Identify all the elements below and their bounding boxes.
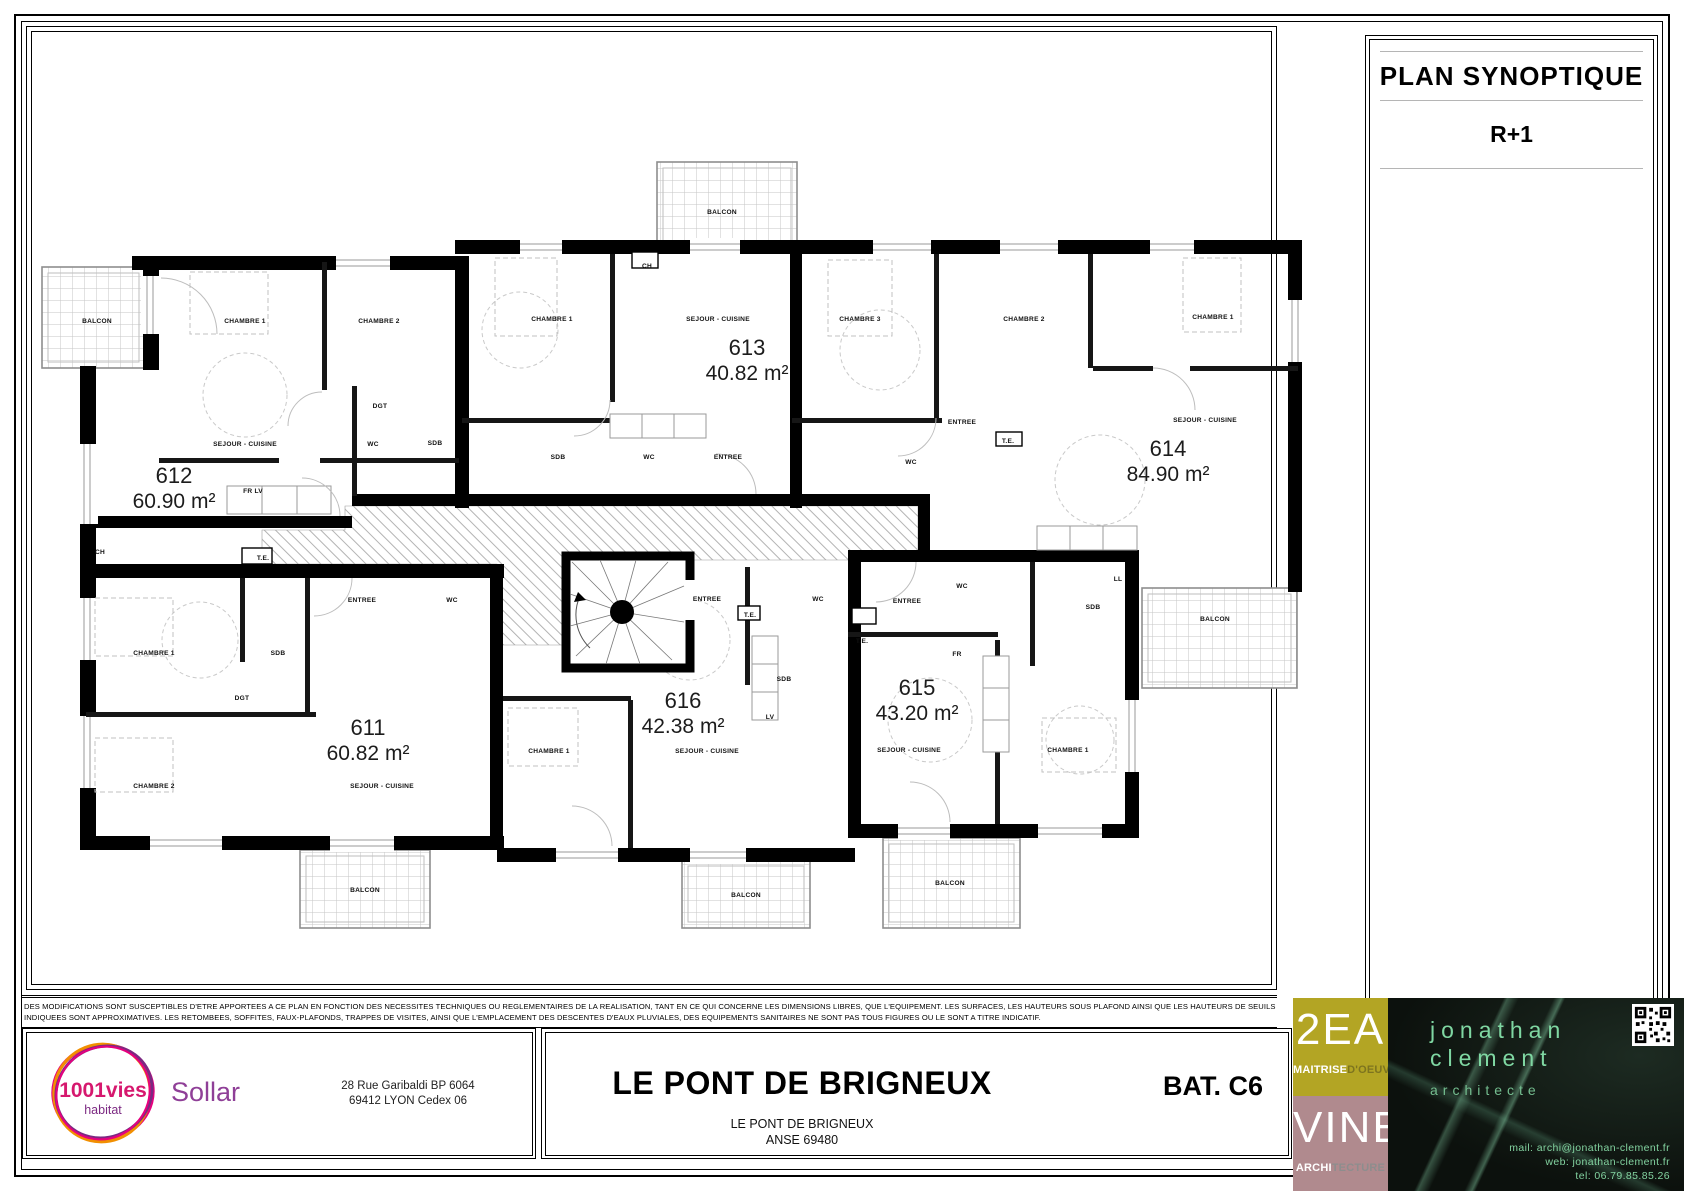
room-label: CHAMBRE 1 — [224, 318, 266, 325]
room-label: ENTREE — [714, 454, 743, 461]
architect-web: web: jonathan-clement.fr — [1509, 1155, 1670, 1169]
room-label: BALCON — [731, 892, 761, 899]
apartment-area-label: 60.82 m² — [327, 742, 410, 765]
room-label: BALCON — [82, 318, 112, 325]
qr-code-icon — [1632, 1004, 1674, 1046]
room-label: T.E. — [744, 612, 756, 619]
moe-vine-sublabel: ARCHITECTURE — [1293, 1162, 1388, 1174]
room-label: LV — [766, 714, 775, 721]
apartment-number-label: 613 — [729, 335, 766, 360]
apartment-area-label: 42.38 m² — [642, 715, 725, 738]
room-label: SDB — [777, 676, 792, 683]
project-block: LE PONT DE BRIGNEUX LE PONT DE BRIGNEUX … — [541, 1028, 1292, 1159]
room-label: SDB — [271, 650, 286, 657]
room-label: WC — [367, 441, 379, 448]
moe-2ea-block: 2EA MAITRISED'OEUVRE — [1293, 998, 1388, 1096]
client-address-line-1: 28 Rue Garibaldi BP 6064 — [285, 1079, 531, 1094]
room-label: T.E. — [1002, 438, 1014, 445]
room-label: DGT — [373, 403, 388, 410]
apartment-area-label: 43.20 m² — [876, 702, 959, 725]
room-label: CHAMBRE 3 — [839, 316, 881, 323]
panel-divider — [1380, 51, 1643, 52]
client-address-line-2: 69412 LYON Cedex 06 — [285, 1094, 531, 1109]
client-logo-text: 1001vies — [59, 1079, 147, 1102]
moe-vine-block: VINE ARCHITECTURE — [1293, 1096, 1388, 1191]
room-label: WC — [812, 596, 824, 603]
room-label: ENTREE — [348, 597, 377, 604]
apartment-area-label: 84.90 m² — [1127, 463, 1210, 486]
panel-divider — [1380, 100, 1643, 101]
room-label: LL — [1114, 576, 1123, 583]
client-logo: 1001vies habitat — [47, 1037, 159, 1149]
room-label: CHAMBRE 1 — [133, 650, 175, 657]
project-subtitle-line-2: ANSE 69480 — [582, 1133, 1022, 1149]
apartment-area-label: 40.82 m² — [706, 362, 789, 385]
apartment-number-label: 612 — [156, 463, 193, 488]
room-label: SEJOUR - CUISINE — [675, 748, 739, 755]
project-title: LE PONT DE BRIGNEUX — [582, 1065, 1022, 1102]
client-brand: Sollar — [171, 1077, 240, 1108]
moe-vine-label: VINE — [1293, 1102, 1388, 1154]
room-label: CH — [95, 549, 105, 556]
room-label: CHAMBRE 2 — [358, 318, 400, 325]
disclaimer-line-2: INDIQUEES SONT APPROXIMATIVES. LES RETOM… — [22, 1012, 1277, 1023]
room-label: BALCON — [1200, 616, 1230, 623]
room-label: CHAMBRE 1 — [528, 748, 570, 755]
apartment-number-label: 616 — [665, 688, 702, 713]
architect-card: jonathan clement architecte mail: archi@… — [1388, 998, 1684, 1191]
room-label: SEJOUR - CUISINE — [213, 441, 277, 448]
room-label: ENTREE — [893, 598, 922, 605]
moe-2ea-sub-strong: MAITRISE — [1293, 1064, 1347, 1076]
room-label: DGT — [235, 695, 250, 702]
apartment-number-label: 611 — [350, 715, 385, 740]
room-label: SEJOUR - CUISINE — [877, 747, 941, 754]
moe-vine-sub-strong: ARCHI — [1296, 1162, 1332, 1174]
project-subtitle-line-1: LE PONT DE BRIGNEUX — [582, 1117, 1022, 1133]
room-label: WC — [446, 597, 458, 604]
apartment-number-label: 615 — [899, 675, 936, 700]
room-label: CHAMBRE 1 — [1192, 314, 1234, 321]
panel-title: PLAN SYNOPTIQUE — [1366, 56, 1657, 96]
drawing-sheet: 61260.90 m²BALCONCHAMBRE 1CHAMBRE 2DGTWC… — [0, 0, 1684, 1191]
architect-contact: mail: archi@jonathan-clement.fr web: jon… — [1509, 1141, 1670, 1183]
architect-name-line-1: jonathan — [1430, 1016, 1566, 1044]
moe-2ea-label: 2EA — [1293, 1004, 1388, 1056]
architect-tel: tel: 06.79.85.85.26 — [1509, 1169, 1670, 1183]
room-label: FR — [952, 651, 961, 658]
room-label: SDB — [1086, 604, 1101, 611]
spiral-staircase — [566, 556, 696, 668]
panel-divider — [1380, 168, 1643, 169]
room-label: WC — [643, 454, 655, 461]
client-address: 28 Rue Garibaldi BP 6064 69412 LYON Cede… — [285, 1079, 531, 1108]
room-label: CH — [642, 263, 652, 270]
room-label: ENTREE — [693, 596, 722, 603]
room-label: SEJOUR - CUISINE — [686, 316, 750, 323]
room-label: CHAMBRE 2 — [133, 783, 175, 790]
room-label: T.E. — [856, 638, 868, 645]
room-label: BALCON — [350, 887, 380, 894]
room-label: BALCON — [935, 880, 965, 887]
architect-name: jonathan clement — [1430, 1016, 1566, 1072]
room-label: CHAMBRE 2 — [1003, 316, 1045, 323]
architect-role: architecte — [1430, 1082, 1541, 1098]
client-logo-subtext: habitat — [84, 1103, 122, 1117]
room-label: T.E. — [257, 555, 269, 562]
room-label: SDB — [551, 454, 566, 461]
room-label: CHAMBRE 1 — [1047, 747, 1089, 754]
room-label: WC — [905, 459, 917, 466]
project-subtitle: LE PONT DE BRIGNEUX ANSE 69480 — [582, 1117, 1022, 1148]
building-code: BAT. C6 — [1163, 1071, 1263, 1102]
room-label: CHAMBRE 1 — [531, 316, 573, 323]
disclaimer-line-1: DES MODIFICATIONS SONT SUSCEPTIBLES D'ET… — [22, 1001, 1277, 1012]
room-label: SEJOUR - CUISINE — [350, 783, 414, 790]
architect-mail: mail: archi@jonathan-clement.fr — [1509, 1141, 1670, 1155]
architect-name-line-2: clement — [1430, 1044, 1566, 1072]
room-label: BALCON — [707, 209, 737, 216]
room-label: FR LV — [243, 488, 263, 495]
panel-level: R+1 — [1366, 104, 1657, 164]
moe-vine-sub-muted: TECTURE — [1332, 1162, 1385, 1174]
apartment-area-label: 60.90 m² — [133, 490, 216, 513]
disclaimer-strip: DES MODIFICATIONS SONT SUSCEPTIBLES D'ET… — [22, 995, 1277, 1028]
moe-2ea-sublabel: MAITRISED'OEUVRE — [1293, 1064, 1388, 1076]
room-label: WC — [956, 583, 968, 590]
client-block: 1001vies habitat Sollar 28 Rue Garibaldi… — [22, 1028, 536, 1159]
apartment-number-label: 614 — [1150, 436, 1187, 461]
room-label: ENTREE — [948, 419, 977, 426]
room-label: SEJOUR - CUISINE — [1173, 417, 1237, 424]
room-label: SDB — [428, 440, 443, 447]
